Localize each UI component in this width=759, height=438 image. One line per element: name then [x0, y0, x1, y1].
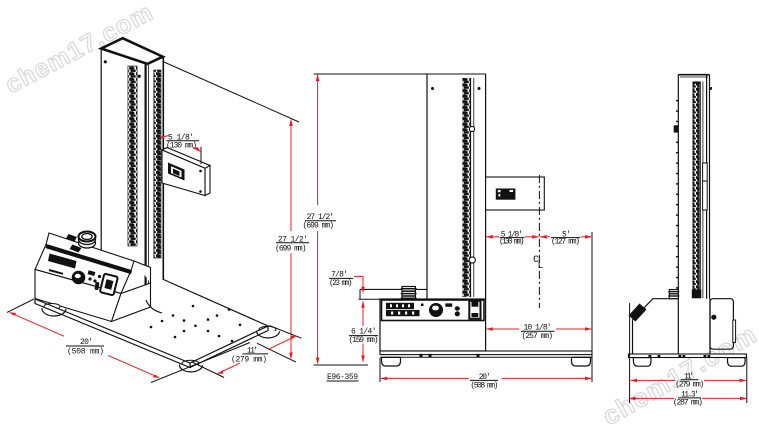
svg-text:(699 mm): (699 mm) — [303, 222, 335, 231]
svg-text:(159 mm): (159 mm) — [349, 336, 379, 345]
svg-text:(130 mm): (130 mm) — [166, 142, 197, 151]
svg-text:(508 mm): (508 mm) — [470, 382, 498, 391]
svg-text:(287 mm): (287 mm) — [673, 399, 703, 408]
svg-text:(279 mm): (279 mm) — [231, 355, 267, 364]
svg-text:L: L — [538, 261, 544, 272]
svg-text:(127 mm): (127 mm) — [551, 238, 580, 247]
svg-text:(508 mm): (508 mm) — [67, 348, 104, 357]
svg-text:(279 mm): (279 mm) — [675, 380, 704, 389]
svg-text:(699 mm): (699 mm) — [275, 244, 307, 253]
svg-text:(23 mm): (23 mm) — [329, 279, 353, 288]
svg-text:(130 mm): (130 mm) — [499, 238, 525, 247]
svg-text:(257 mm): (257 mm) — [522, 332, 554, 341]
